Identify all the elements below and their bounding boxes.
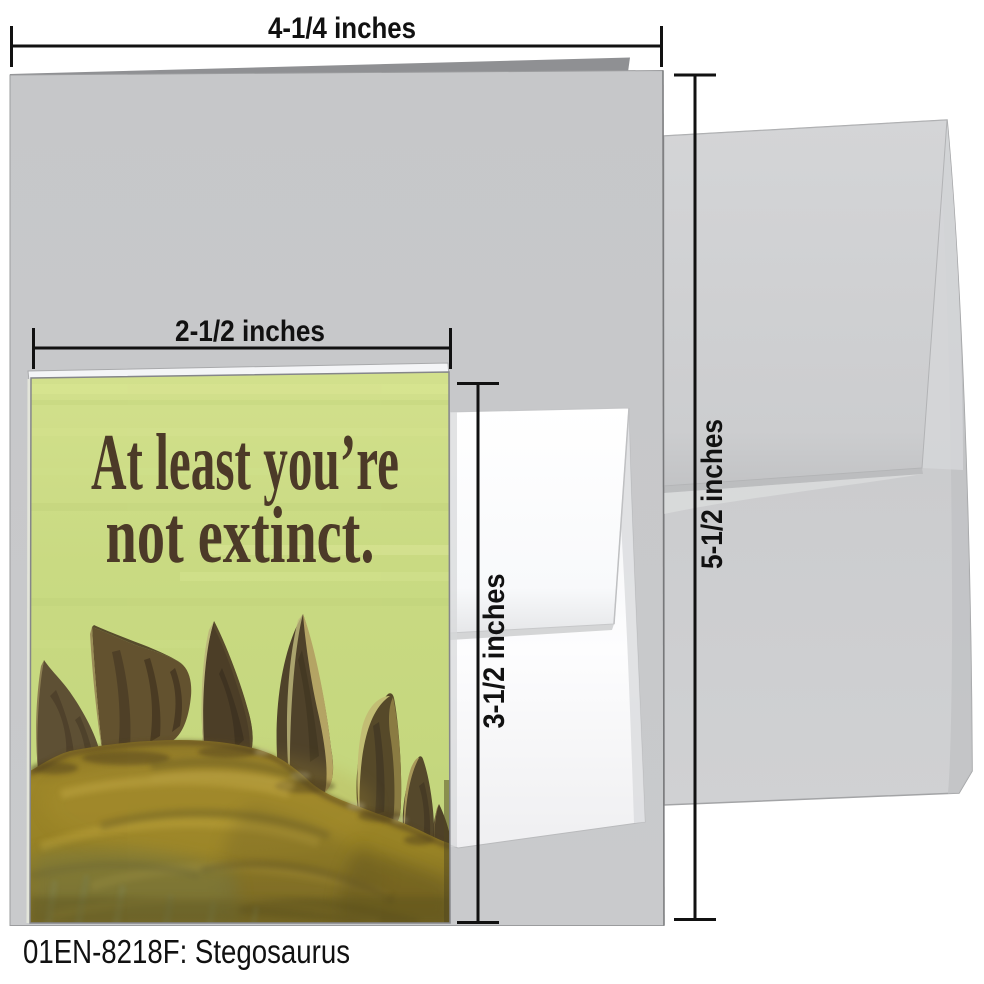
svg-text:5-1/2 inches: 5-1/2 inches — [696, 419, 729, 569]
svg-text:4-1/4 inches: 4-1/4 inches — [268, 12, 416, 45]
svg-text:2-1/2 inches: 2-1/2 inches — [175, 315, 325, 348]
svg-text:3-1/2 inches: 3-1/2 inches — [478, 574, 511, 729]
svg-text:01EN-8218F: Stegosaurus: 01EN-8218F: Stegosaurus — [23, 933, 350, 970]
svg-text:not extinct.: not extinct. — [106, 492, 375, 580]
